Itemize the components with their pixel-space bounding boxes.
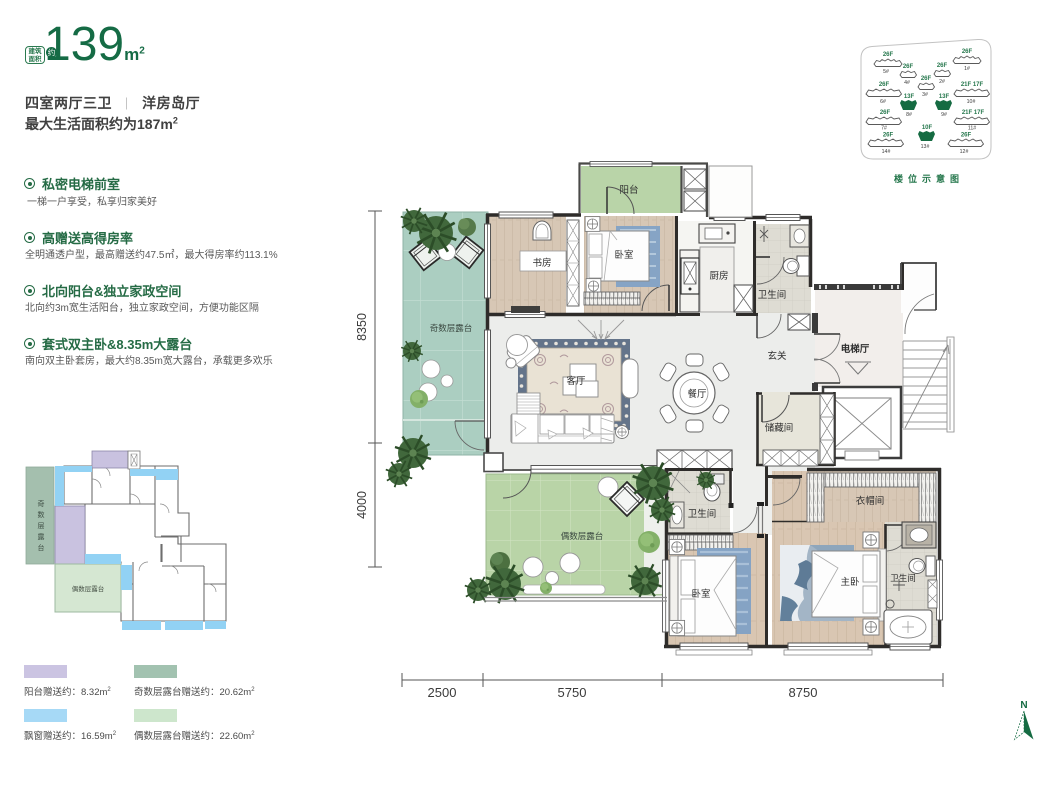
svg-text:卫生间: 卫生间 (688, 508, 717, 520)
svg-text:N: N (1020, 700, 1027, 711)
svg-text:26F: 26F (880, 110, 891, 116)
svg-text:玄关: 玄关 (767, 350, 787, 362)
svg-text:4000: 4000 (355, 491, 369, 519)
svg-text:偶数层露台: 偶数层露台 (72, 584, 105, 593)
svg-text:8750: 8750 (789, 685, 818, 700)
svg-text:奇数层露台: 奇数层露台 (430, 323, 473, 333)
svg-text:1#: 1# (964, 66, 970, 72)
svg-text:8#: 8# (906, 112, 912, 118)
svg-text:6#: 6# (880, 99, 886, 105)
svg-text:10F: 10F (922, 125, 933, 131)
svg-text:5#: 5# (883, 69, 889, 75)
svg-text:21F 17F: 21F 17F (962, 110, 985, 116)
svg-text:储藏间: 储藏间 (765, 422, 794, 434)
svg-text:26F: 26F (962, 49, 973, 55)
svg-text:21F 17F: 21F 17F (961, 82, 984, 88)
svg-text:10#: 10# (967, 99, 976, 105)
svg-text:主卧: 主卧 (840, 576, 860, 588)
svg-text:阳台: 阳台 (619, 184, 638, 196)
svg-text:26F: 26F (921, 76, 932, 82)
svg-text:厨房: 厨房 (709, 270, 728, 282)
svg-text:书房: 书房 (532, 257, 551, 269)
svg-text:13#: 13# (921, 144, 930, 150)
svg-text:12#: 12# (960, 149, 969, 155)
svg-text:26F: 26F (937, 63, 948, 69)
svg-text:偶数层露台: 偶数层露台 (561, 531, 604, 541)
svg-text:26F: 26F (961, 133, 972, 139)
svg-text:4#: 4# (904, 80, 910, 86)
svg-text:11#: 11# (968, 126, 976, 132)
svg-text:卫生间: 卫生间 (890, 573, 916, 583)
svg-text:2500: 2500 (428, 685, 457, 700)
svg-text:楼位示意图: 楼位示意图 (894, 173, 964, 184)
svg-text:26F: 26F (903, 64, 914, 70)
svg-text:13F: 13F (939, 94, 950, 100)
svg-text:9#: 9# (941, 112, 947, 118)
svg-text:7#: 7# (881, 126, 887, 132)
svg-text:26F: 26F (883, 133, 894, 139)
svg-text:奇数层露台: 奇数层露台 (38, 499, 45, 552)
svg-text:卧室: 卧室 (691, 588, 710, 600)
svg-text:26F: 26F (879, 82, 890, 88)
svg-text:餐厅: 餐厅 (687, 388, 707, 400)
svg-text:电梯厅: 电梯厅 (841, 343, 870, 355)
svg-text:5750: 5750 (558, 685, 587, 700)
svg-text:13F: 13F (904, 94, 915, 100)
svg-text:2#: 2# (939, 79, 945, 85)
svg-text:8350: 8350 (355, 313, 369, 341)
svg-text:卧室: 卧室 (614, 249, 633, 261)
svg-text:衣帽间: 衣帽间 (856, 495, 885, 507)
svg-text:3#: 3# (922, 92, 928, 98)
svg-text:26F: 26F (883, 52, 894, 58)
svg-text:14#: 14# (882, 149, 891, 155)
svg-text:卫生间: 卫生间 (758, 289, 787, 301)
svg-text:客厅: 客厅 (566, 375, 586, 387)
